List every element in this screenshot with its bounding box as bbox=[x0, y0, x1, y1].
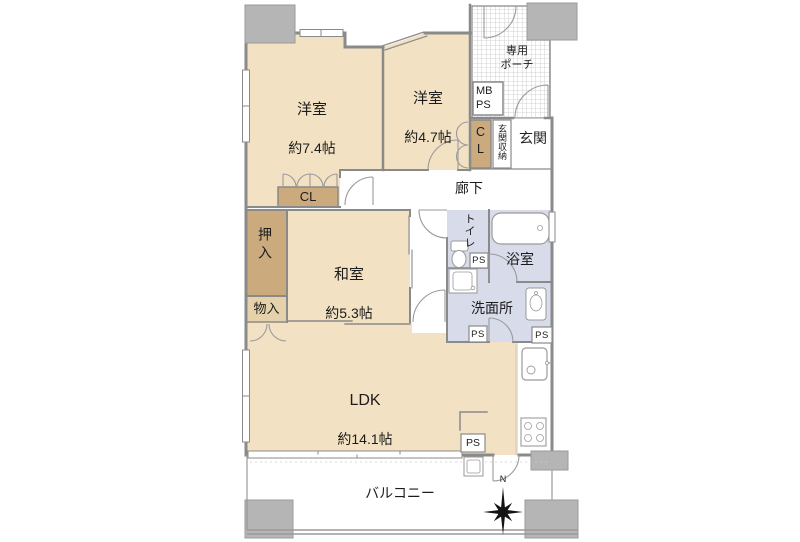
bathtub-drain bbox=[538, 226, 543, 231]
toilet-bowl bbox=[452, 251, 466, 268]
ps-box-wash-right bbox=[532, 327, 552, 343]
western-room2-floor bbox=[383, 33, 470, 170]
ps-box-ldk bbox=[461, 434, 485, 452]
kitchen-drain bbox=[527, 366, 535, 374]
wall-stub-right bbox=[531, 451, 568, 470]
door-balcony bbox=[493, 455, 519, 481]
japanese-room-floor bbox=[287, 210, 410, 322]
stove bbox=[521, 418, 546, 446]
column-bottom-right bbox=[525, 500, 578, 538]
floorplan-canvas bbox=[0, 0, 800, 542]
washbasin-bowl bbox=[530, 295, 542, 311]
ps-box-wash-left bbox=[469, 326, 487, 342]
closet-main-box bbox=[278, 187, 338, 207]
washbasin-tap bbox=[535, 292, 538, 295]
door-hall-ldk bbox=[413, 290, 445, 322]
mb-ps-box bbox=[473, 82, 503, 115]
ps-box-toilet bbox=[470, 253, 488, 268]
washer-tap bbox=[471, 286, 475, 290]
column-bottom-left bbox=[245, 500, 293, 538]
balcony-sink-inner bbox=[467, 460, 480, 473]
floorplan-page: 洋室 約7.4帖 洋室 約4.7帖 和室 約5.3帖 LDK 約14.1帖 専用… bbox=[0, 0, 800, 542]
door-toilet bbox=[419, 210, 447, 238]
oshiire-floor bbox=[246, 210, 287, 296]
western-room1-floor bbox=[246, 33, 383, 207]
kitchen-sink bbox=[522, 348, 547, 380]
column-top-left bbox=[245, 5, 295, 43]
closet-entrance-box bbox=[470, 120, 491, 168]
monoire-floor bbox=[246, 296, 287, 322]
toilet-tank bbox=[451, 241, 468, 251]
column-top-right bbox=[527, 3, 577, 40]
washer-pan-inner bbox=[453, 272, 472, 290]
door-western1 bbox=[345, 177, 373, 205]
compass-icon bbox=[483, 487, 523, 535]
entrance-storage-box bbox=[493, 120, 511, 168]
